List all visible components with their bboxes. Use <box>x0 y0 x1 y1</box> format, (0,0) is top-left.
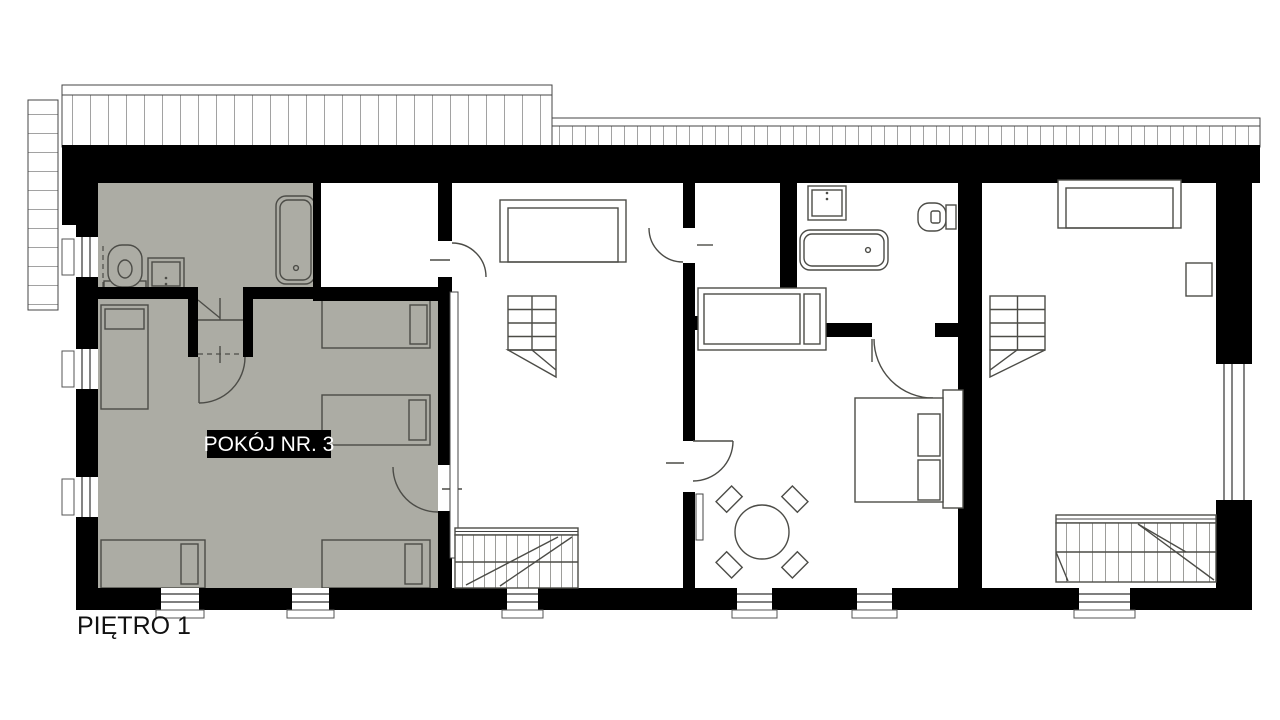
sink-icon <box>148 258 184 290</box>
window <box>502 588 543 618</box>
door-swing <box>649 228 713 262</box>
door-swing <box>872 339 933 398</box>
floor-label: PIĘTRO 1 <box>77 612 191 640</box>
room-pokoj-3-area <box>98 183 438 588</box>
sink-icon <box>808 186 846 220</box>
round-table <box>716 486 808 578</box>
window <box>1074 588 1135 618</box>
chair <box>782 552 808 578</box>
roof-overhang-top-right <box>552 118 1260 147</box>
floor-plan-svg: POKÓJ NR. 3 PIĘTRO 1 <box>0 0 1280 720</box>
door-swing <box>430 241 486 277</box>
toilet-icon <box>918 203 956 231</box>
bed <box>322 300 430 348</box>
room2 <box>450 200 626 588</box>
floor-plan-page: POKÓJ NR. 3 PIĘTRO 1 <box>0 0 1280 720</box>
bed <box>101 305 148 409</box>
room-label-text: POKÓJ NR. 3 <box>204 433 335 456</box>
middle-unit <box>696 186 963 578</box>
bed <box>322 395 430 445</box>
room-label: POKÓJ NR. 3 <box>204 430 335 458</box>
roof-overhang-left <box>28 100 58 310</box>
window <box>732 588 777 618</box>
right-room <box>990 180 1216 582</box>
window <box>62 237 98 277</box>
roof-overhang-top-left <box>62 85 552 147</box>
bed <box>101 540 205 588</box>
chair <box>716 486 742 512</box>
window <box>852 588 897 618</box>
bed <box>322 540 430 588</box>
bed <box>1058 180 1181 228</box>
window <box>62 477 98 517</box>
chair <box>716 552 742 578</box>
radiator <box>450 292 458 558</box>
bed <box>698 288 826 350</box>
double-bed <box>855 390 963 508</box>
window <box>62 349 98 389</box>
bathtub-icon <box>800 230 888 270</box>
bathtub-icon <box>276 196 315 284</box>
window <box>287 588 334 618</box>
radiator <box>696 494 703 540</box>
window <box>1216 364 1252 500</box>
door-swing <box>666 441 733 481</box>
attic-ladder-icon <box>990 296 1045 377</box>
chair <box>782 486 808 512</box>
attic-ladder-icon <box>508 296 556 377</box>
toilet-icon <box>104 245 146 292</box>
nightstand <box>1186 263 1212 296</box>
staircase <box>1056 515 1216 582</box>
staircase <box>455 528 578 588</box>
bed <box>500 200 626 262</box>
